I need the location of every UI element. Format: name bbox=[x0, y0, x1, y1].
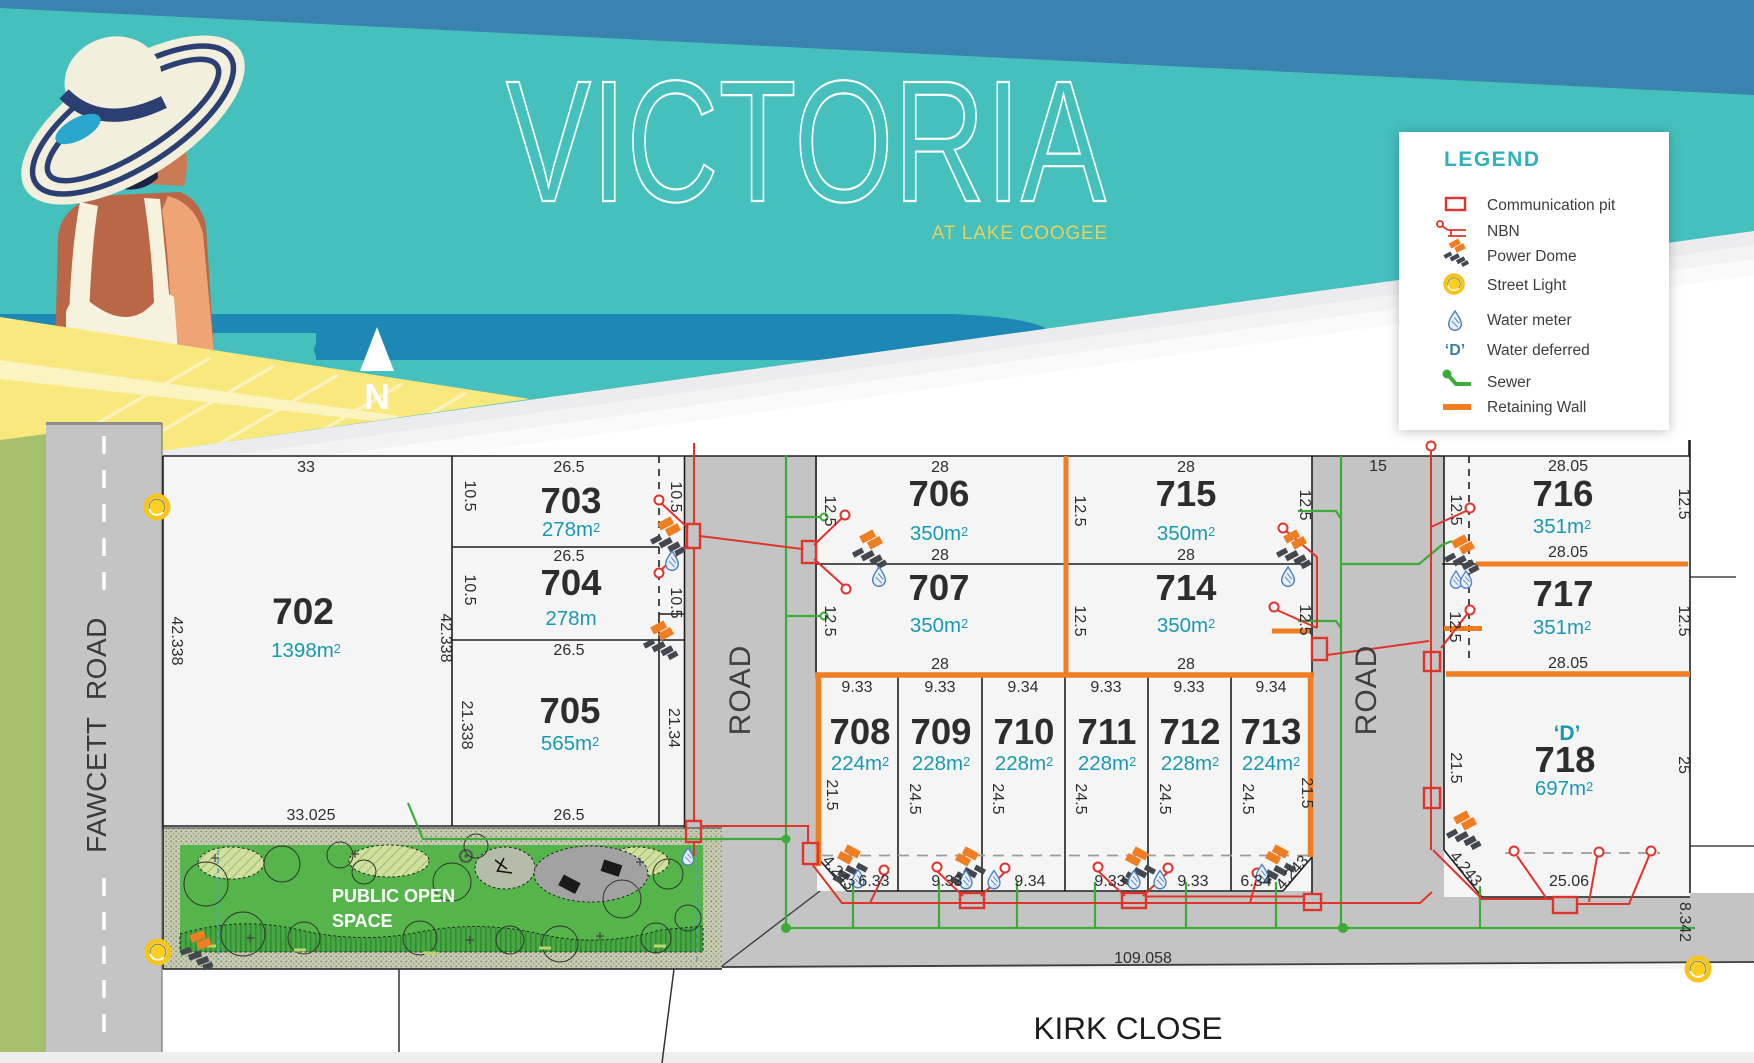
svg-text:709: 709 bbox=[911, 711, 972, 752]
svg-text:42.338: 42.338 bbox=[437, 614, 454, 663]
svg-text:278m: 278m bbox=[545, 607, 596, 630]
svg-text:717: 717 bbox=[1533, 573, 1594, 614]
svg-text:351m2: 351m2 bbox=[1533, 616, 1591, 639]
svg-text:ROAD: ROAD bbox=[1350, 645, 1383, 736]
svg-text:9.33: 9.33 bbox=[1173, 679, 1204, 696]
svg-text:21.5: 21.5 bbox=[1447, 752, 1464, 783]
svg-text:565m2: 565m2 bbox=[541, 732, 599, 755]
svg-text:12.5: 12.5 bbox=[1296, 489, 1313, 520]
svg-text:28: 28 bbox=[931, 459, 949, 476]
svg-text:12.5: 12.5 bbox=[1071, 495, 1088, 526]
svg-text:28.05: 28.05 bbox=[1548, 655, 1588, 672]
svg-text:713: 713 bbox=[1241, 711, 1302, 752]
svg-text:707: 707 bbox=[909, 567, 970, 608]
svg-text:10.5: 10.5 bbox=[461, 574, 478, 605]
svg-text:12.5: 12.5 bbox=[1446, 611, 1463, 642]
svg-text:224m2: 224m2 bbox=[1242, 752, 1300, 775]
svg-text:703: 703 bbox=[541, 480, 602, 521]
svg-text:9.33: 9.33 bbox=[924, 679, 955, 696]
svg-text:26.5: 26.5 bbox=[553, 807, 584, 824]
svg-text:714: 714 bbox=[1156, 567, 1218, 608]
svg-text:21.34: 21.34 bbox=[665, 708, 682, 748]
svg-text:28: 28 bbox=[1177, 547, 1195, 564]
svg-text:Water deferred: Water deferred bbox=[1487, 342, 1590, 359]
svg-text:224m2: 224m2 bbox=[831, 752, 889, 775]
svg-text:10.5: 10.5 bbox=[667, 587, 684, 618]
svg-text:24.5: 24.5 bbox=[1239, 783, 1256, 814]
svg-text:24.5: 24.5 bbox=[1072, 783, 1089, 814]
svg-text:12.5: 12.5 bbox=[1675, 605, 1692, 636]
svg-text:109.058: 109.058 bbox=[1114, 950, 1172, 967]
svg-text:Communication pit: Communication pit bbox=[1487, 197, 1616, 214]
svg-text:28: 28 bbox=[1177, 656, 1195, 673]
svg-text:9.34: 9.34 bbox=[1007, 679, 1038, 696]
svg-text:10.5: 10.5 bbox=[667, 481, 684, 512]
svg-text:711: 711 bbox=[1078, 711, 1137, 752]
svg-text:706: 706 bbox=[909, 473, 970, 514]
svg-text:350m2: 350m2 bbox=[1157, 522, 1215, 545]
svg-text:712: 712 bbox=[1160, 711, 1221, 752]
svg-text:710: 710 bbox=[994, 711, 1055, 752]
svg-text:12.5: 12.5 bbox=[821, 495, 838, 526]
svg-text:33: 33 bbox=[297, 459, 315, 476]
svg-text:Power Dome: Power Dome bbox=[1487, 248, 1577, 265]
svg-text:Water meter: Water meter bbox=[1487, 312, 1572, 329]
svg-text:705: 705 bbox=[540, 690, 601, 731]
svg-text:25: 25 bbox=[1675, 756, 1692, 774]
svg-text:9.33: 9.33 bbox=[1094, 873, 1125, 890]
svg-text:351m2: 351m2 bbox=[1533, 515, 1591, 538]
svg-text:6.34: 6.34 bbox=[1240, 873, 1271, 890]
svg-text:228m2: 228m2 bbox=[1078, 752, 1136, 775]
svg-text:9.34: 9.34 bbox=[1255, 679, 1286, 696]
svg-text:26.5: 26.5 bbox=[553, 548, 584, 565]
svg-text:28.05: 28.05 bbox=[1548, 544, 1588, 561]
svg-text:Retaining Wall: Retaining Wall bbox=[1487, 399, 1586, 416]
svg-text:SPACE: SPACE bbox=[332, 911, 393, 931]
svg-text:278m2: 278m2 bbox=[542, 518, 600, 541]
svg-text:716: 716 bbox=[1533, 473, 1594, 514]
svg-text:Street Light: Street Light bbox=[1487, 277, 1567, 294]
svg-text:12.5: 12.5 bbox=[821, 605, 838, 636]
svg-text:228m2: 228m2 bbox=[912, 752, 970, 775]
svg-text:15: 15 bbox=[1369, 458, 1387, 475]
svg-text:12.5: 12.5 bbox=[1071, 605, 1088, 636]
svg-text:24.5: 24.5 bbox=[1156, 783, 1173, 814]
svg-text:‘D’: ‘D’ bbox=[1445, 342, 1465, 359]
svg-text:21.5: 21.5 bbox=[823, 779, 840, 810]
svg-text:FAWCETT ROAD: FAWCETT ROAD bbox=[81, 617, 112, 853]
svg-text:25.06: 25.06 bbox=[1549, 873, 1589, 890]
svg-text:12.5: 12.5 bbox=[1447, 494, 1464, 525]
svg-text:8.342: 8.342 bbox=[1676, 902, 1693, 942]
svg-text:NBN: NBN bbox=[1487, 223, 1520, 240]
svg-text:VICTORIA: VICTORIA bbox=[506, 44, 1106, 238]
svg-text:702: 702 bbox=[272, 591, 334, 632]
svg-text:1398m2: 1398m2 bbox=[271, 639, 341, 662]
svg-text:718: 718 bbox=[1535, 739, 1596, 780]
svg-text:28: 28 bbox=[1177, 459, 1195, 476]
svg-text:715: 715 bbox=[1156, 473, 1217, 514]
svg-text:697m2: 697m2 bbox=[1535, 777, 1593, 800]
svg-text:N: N bbox=[364, 376, 390, 417]
svg-text:9.34: 9.34 bbox=[1014, 873, 1045, 890]
svg-text:28: 28 bbox=[931, 547, 949, 564]
svg-text:12.5: 12.5 bbox=[1675, 488, 1692, 519]
svg-text:Sewer: Sewer bbox=[1487, 374, 1531, 391]
svg-text:28.05: 28.05 bbox=[1548, 458, 1588, 475]
svg-text:LEGEND: LEGEND bbox=[1444, 148, 1541, 171]
svg-text:704: 704 bbox=[541, 562, 603, 603]
svg-text:26.5: 26.5 bbox=[553, 642, 584, 659]
svg-text:24.5: 24.5 bbox=[989, 783, 1006, 814]
svg-text:21.5: 21.5 bbox=[1298, 777, 1315, 808]
svg-text:26.5: 26.5 bbox=[553, 459, 584, 476]
svg-text:228m2: 228m2 bbox=[995, 752, 1053, 775]
svg-text:9.33: 9.33 bbox=[1090, 679, 1121, 696]
svg-text:21.338: 21.338 bbox=[458, 701, 475, 750]
svg-text:ROAD: ROAD bbox=[724, 645, 757, 736]
svg-text:9.33: 9.33 bbox=[841, 679, 872, 696]
svg-text:28: 28 bbox=[931, 656, 949, 673]
svg-text:10.5: 10.5 bbox=[461, 480, 478, 511]
svg-text:24.5: 24.5 bbox=[906, 783, 923, 814]
svg-text:708: 708 bbox=[830, 711, 891, 752]
svg-text:KIRK CLOSE: KIRK CLOSE bbox=[1033, 1010, 1222, 1046]
svg-text:350m2: 350m2 bbox=[910, 522, 968, 545]
svg-text:9.33: 9.33 bbox=[931, 873, 962, 890]
svg-text:9.33: 9.33 bbox=[1177, 873, 1208, 890]
svg-text:228m2: 228m2 bbox=[1161, 752, 1219, 775]
svg-text:12.5: 12.5 bbox=[1296, 604, 1313, 635]
svg-text:350m2: 350m2 bbox=[1157, 614, 1215, 637]
svg-text:33.025: 33.025 bbox=[287, 807, 336, 824]
svg-text:42.338: 42.338 bbox=[168, 617, 185, 666]
svg-text:6.33: 6.33 bbox=[858, 873, 889, 890]
svg-text:AT LAKE COOGEE: AT LAKE COOGEE bbox=[932, 223, 1108, 244]
svg-text:350m2: 350m2 bbox=[910, 614, 968, 637]
svg-text:PUBLIC OPEN: PUBLIC OPEN bbox=[332, 886, 455, 906]
